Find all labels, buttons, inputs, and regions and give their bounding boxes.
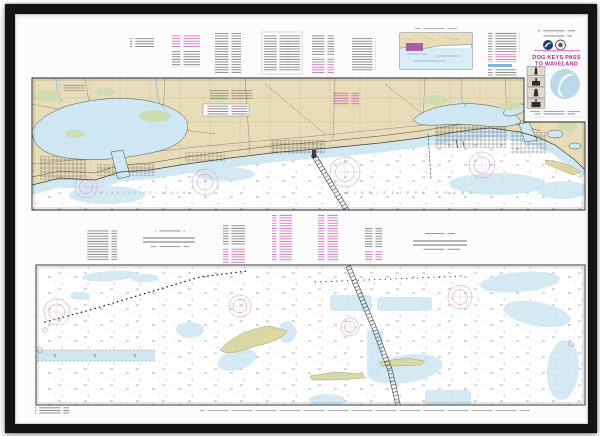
note-block bbox=[210, 90, 254, 100]
margin-notes-top bbox=[130, 28, 520, 76]
margin-notes-middle bbox=[87, 214, 467, 263]
chart-panel-bottom bbox=[36, 265, 585, 406]
scale-bars bbox=[143, 230, 195, 247]
intracoastal-waterway bbox=[37, 350, 155, 361]
note-block bbox=[365, 250, 382, 261]
water-label-mississippi-sound-west: MISSISSIPPI SOUND bbox=[100, 191, 195, 195]
town-grid-long-beach bbox=[185, 152, 225, 162]
note-block bbox=[365, 228, 382, 248]
note-block bbox=[60, 84, 86, 92]
footer-note-block bbox=[35, 407, 69, 414]
note-line bbox=[415, 28, 457, 30]
title-rule bbox=[534, 50, 580, 51]
note-block bbox=[488, 64, 512, 67]
product-photo: 18 24 9 bbox=[0, 0, 600, 436]
lighthouse-photo-icon bbox=[527, 99, 545, 109]
note-block bbox=[172, 50, 200, 67]
note-table bbox=[262, 32, 302, 74]
note-block bbox=[223, 225, 245, 245]
lighthouse-photo-icon bbox=[527, 66, 545, 76]
margin-notes-footer bbox=[35, 407, 530, 414]
lighthouse-photo-icon bbox=[527, 88, 545, 98]
note-block bbox=[312, 57, 334, 73]
lighthouse-caption bbox=[535, 113, 575, 115]
note-table bbox=[203, 104, 249, 116]
note-block bbox=[333, 92, 359, 106]
mat-and-print: 18 24 9 bbox=[15, 14, 588, 424]
picture-frame: 18 24 9 bbox=[5, 4, 597, 433]
note-block bbox=[488, 69, 518, 76]
footer-line bbox=[200, 410, 530, 412]
noaa-watermark-icon bbox=[550, 69, 580, 99]
chart-number-line bbox=[538, 30, 575, 33]
note-block bbox=[488, 54, 516, 62]
scale-bars bbox=[413, 233, 467, 250]
lighthouse-caption bbox=[530, 110, 580, 112]
chart-number-line bbox=[541, 34, 572, 37]
chart-title-line1: DOG KEYS PASS bbox=[532, 55, 581, 61]
inset-coverage-highlight bbox=[406, 43, 423, 51]
dept-of-commerce-seal-icon bbox=[556, 40, 566, 50]
noaa-logo-icon bbox=[543, 40, 553, 50]
note-block bbox=[172, 35, 200, 48]
note-block bbox=[318, 214, 338, 262]
note-block bbox=[215, 33, 241, 73]
note-block bbox=[312, 35, 334, 55]
inset-locator-map bbox=[400, 33, 472, 69]
note-block bbox=[352, 37, 376, 71]
water-label-mississippi-sound: MISSISSIPPI SOUND bbox=[345, 190, 478, 195]
note-block bbox=[130, 38, 154, 48]
title-block: DOG KEYS PASS TO WAVELAND bbox=[527, 30, 585, 117]
chart-panel-top: MISSISSIPPI SOUND MISSISSIPPI SOUND bbox=[32, 78, 588, 212]
note-block bbox=[223, 247, 245, 263]
note-block bbox=[272, 214, 292, 262]
lighthouse-photo-icon bbox=[527, 77, 545, 87]
nautical-chart-print: 18 24 9 bbox=[15, 14, 588, 424]
note-block bbox=[87, 230, 117, 260]
note-block bbox=[488, 32, 520, 52]
subtitle-line bbox=[540, 52, 574, 54]
